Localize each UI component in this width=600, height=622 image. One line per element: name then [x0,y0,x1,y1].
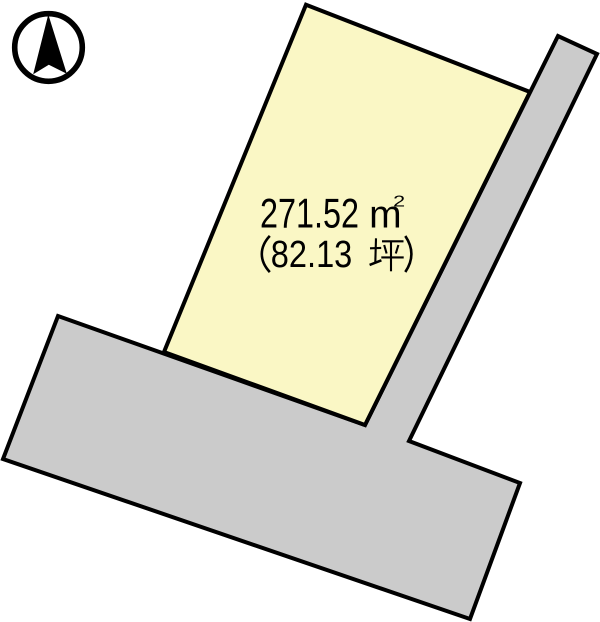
svg-text:82.13: 82.13 [271,233,353,276]
svg-text:2: 2 [393,194,405,211]
svg-text:271.52: 271.52 [260,190,359,237]
